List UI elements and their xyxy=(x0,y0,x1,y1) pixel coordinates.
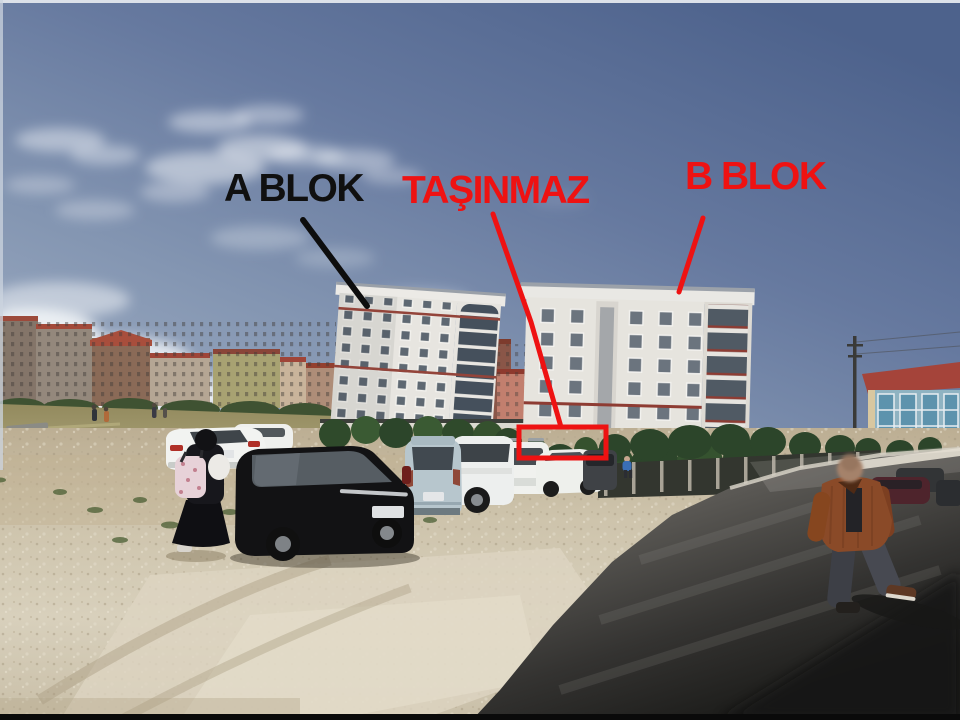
photo-border-top xyxy=(0,0,960,3)
photo-scene xyxy=(0,0,960,720)
photo-border-bottom xyxy=(0,714,960,720)
car-dark-far xyxy=(936,480,960,506)
annotation-label-a-blok: A BLOK xyxy=(224,169,363,208)
appraisal-photo: A BLOK TAŞINMAZ B BLOK xyxy=(0,0,960,720)
annotation-label-b-blok: B BLOK xyxy=(685,157,826,196)
photo-border-left xyxy=(0,0,3,470)
annotation-label-tasinmaz: TAŞINMAZ xyxy=(402,171,589,210)
a-blok-building xyxy=(326,282,506,439)
